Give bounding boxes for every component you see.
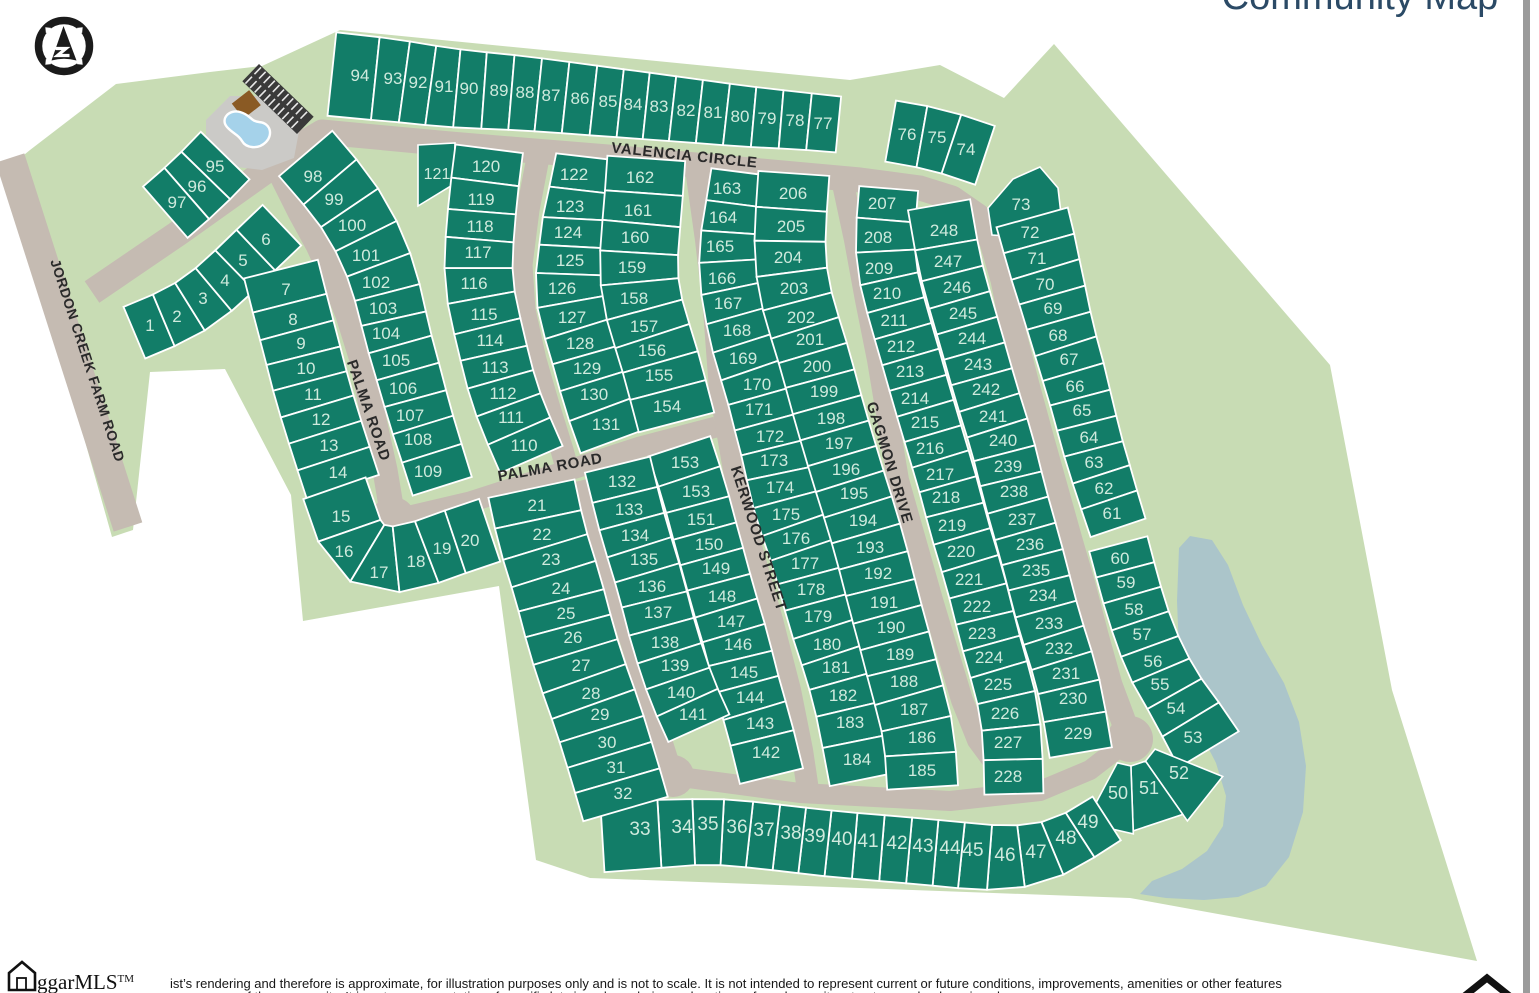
svg-text:145: 145 [730, 663, 758, 682]
svg-text:197: 197 [825, 434, 853, 453]
svg-text:64: 64 [1080, 428, 1099, 447]
svg-text:147: 147 [717, 612, 745, 631]
svg-text:208: 208 [864, 228, 892, 247]
svg-text:43: 43 [912, 836, 933, 857]
svg-text:10: 10 [297, 359, 316, 378]
svg-text:139: 139 [661, 656, 689, 675]
svg-text:133: 133 [615, 500, 643, 519]
svg-text:240: 240 [989, 431, 1017, 450]
svg-text:137: 137 [644, 603, 672, 622]
svg-text:124: 124 [554, 223, 582, 242]
svg-text:222: 222 [963, 597, 991, 616]
svg-text:236: 236 [1016, 535, 1044, 554]
svg-text:49: 49 [1077, 812, 1098, 833]
svg-text:15: 15 [332, 507, 351, 526]
svg-text:143: 143 [746, 714, 774, 733]
svg-text:217: 217 [926, 465, 954, 484]
svg-text:87: 87 [542, 86, 561, 105]
svg-text:205: 205 [777, 217, 805, 236]
svg-text:9: 9 [296, 334, 305, 353]
svg-text:32: 32 [614, 784, 633, 803]
svg-text:111: 111 [498, 408, 524, 427]
svg-text:96: 96 [188, 177, 207, 196]
svg-text:172: 172 [756, 427, 784, 446]
svg-text:177: 177 [791, 554, 819, 573]
svg-text:17: 17 [370, 563, 389, 582]
svg-text:164: 164 [709, 208, 737, 227]
svg-text:153: 153 [682, 482, 710, 501]
svg-text:204: 204 [774, 248, 802, 267]
svg-text:225: 225 [984, 675, 1012, 694]
svg-text:54: 54 [1167, 699, 1186, 718]
svg-text:148: 148 [708, 587, 736, 606]
svg-text:12: 12 [312, 410, 331, 429]
svg-text:59: 59 [1117, 573, 1136, 592]
svg-text:28: 28 [582, 684, 601, 703]
svg-text:107: 107 [396, 406, 424, 425]
svg-text:198: 198 [817, 409, 845, 428]
svg-text:55: 55 [1151, 675, 1170, 694]
svg-text:195: 195 [840, 484, 868, 503]
svg-text:14: 14 [329, 463, 348, 482]
svg-text:68: 68 [1049, 326, 1068, 345]
svg-text:99: 99 [325, 190, 344, 209]
svg-text:110: 110 [510, 436, 537, 455]
svg-text:239: 239 [994, 457, 1022, 476]
svg-text:27: 27 [572, 656, 591, 675]
svg-text:169: 169 [729, 349, 757, 368]
svg-text:138: 138 [651, 633, 679, 652]
svg-text:247: 247 [934, 252, 962, 271]
svg-text:167: 167 [714, 294, 742, 313]
svg-text:25: 25 [557, 604, 576, 623]
svg-text:Community Map: Community Map [1222, 0, 1499, 18]
svg-text:116: 116 [460, 274, 487, 293]
svg-text:156: 156 [638, 341, 666, 360]
svg-text:196: 196 [832, 460, 860, 479]
svg-text:104: 104 [372, 324, 400, 343]
svg-text:21: 21 [528, 496, 547, 515]
svg-text:105: 105 [382, 351, 410, 370]
svg-text:134: 134 [621, 526, 649, 545]
svg-text:7: 7 [281, 280, 290, 299]
svg-text:80: 80 [731, 107, 750, 126]
svg-text:131: 131 [592, 415, 620, 434]
svg-text:128: 128 [566, 334, 594, 353]
svg-text:112: 112 [489, 384, 516, 403]
svg-text:183: 183 [836, 713, 864, 732]
svg-text:248: 248 [930, 221, 958, 240]
svg-text:132: 132 [608, 472, 636, 491]
svg-text:79: 79 [758, 109, 777, 128]
svg-text:126: 126 [548, 279, 576, 298]
svg-text:186: 186 [908, 728, 936, 747]
svg-text:162: 162 [626, 168, 654, 187]
svg-text:36: 36 [726, 817, 747, 838]
svg-text:246: 246 [943, 278, 971, 297]
svg-text:5: 5 [238, 251, 247, 270]
svg-text:125: 125 [556, 251, 584, 270]
svg-text:122: 122 [560, 165, 588, 184]
svg-text:109: 109 [414, 462, 442, 481]
svg-text:89: 89 [490, 81, 509, 100]
svg-text:153: 153 [671, 453, 699, 472]
svg-text:209: 209 [865, 259, 893, 278]
svg-text:84: 84 [624, 95, 643, 114]
svg-text:97: 97 [168, 193, 187, 212]
svg-text:144: 144 [736, 688, 764, 707]
svg-text:207: 207 [868, 194, 896, 213]
svg-text:206: 206 [779, 184, 807, 203]
svg-text:58: 58 [1125, 600, 1144, 619]
svg-text:91: 91 [435, 77, 454, 96]
svg-text:221: 221 [955, 570, 983, 589]
svg-text:67: 67 [1060, 350, 1079, 369]
svg-text:46: 46 [994, 845, 1015, 866]
svg-text:215: 215 [911, 413, 939, 432]
svg-text:159: 159 [618, 258, 646, 277]
svg-text:170: 170 [743, 375, 771, 394]
svg-text:102: 102 [362, 273, 390, 292]
svg-text:184: 184 [843, 750, 871, 769]
svg-text:189: 189 [886, 645, 914, 664]
svg-text:211: 211 [880, 311, 907, 330]
svg-text:121: 121 [424, 166, 451, 183]
svg-text:53: 53 [1184, 728, 1203, 747]
svg-text:69: 69 [1044, 299, 1063, 318]
svg-text:199: 199 [810, 382, 838, 401]
svg-text:65: 65 [1073, 401, 1092, 420]
svg-text:83: 83 [650, 97, 669, 116]
svg-text:34: 34 [671, 817, 693, 838]
svg-text:179: 179 [804, 607, 832, 626]
svg-text:200: 200 [803, 357, 831, 376]
svg-text:219: 219 [938, 516, 966, 535]
svg-text:192: 192 [864, 564, 892, 583]
svg-text:92: 92 [409, 73, 428, 92]
svg-text:77: 77 [814, 114, 833, 133]
svg-text:193: 193 [856, 538, 884, 557]
svg-text:220: 220 [947, 542, 975, 561]
svg-text:72: 72 [1021, 223, 1040, 242]
svg-text:232: 232 [1045, 639, 1073, 658]
svg-text:52: 52 [1169, 763, 1189, 783]
svg-text:123: 123 [556, 197, 584, 216]
svg-text:2: 2 [172, 307, 181, 326]
svg-text:188: 188 [890, 672, 918, 691]
svg-text:82: 82 [677, 101, 696, 120]
svg-text:235: 235 [1022, 561, 1050, 580]
svg-text:135: 135 [630, 550, 658, 569]
svg-text:1: 1 [145, 316, 154, 335]
svg-text:140: 140 [667, 683, 695, 702]
svg-text:29: 29 [591, 705, 610, 724]
svg-text:11: 11 [304, 385, 322, 404]
svg-text:242: 242 [972, 380, 1000, 399]
svg-text:60: 60 [1111, 549, 1130, 568]
svg-text:19: 19 [433, 539, 452, 558]
svg-text:88: 88 [516, 83, 535, 102]
svg-text:157: 157 [630, 317, 658, 336]
svg-text:185: 185 [908, 761, 936, 780]
svg-text:155: 155 [645, 366, 673, 385]
svg-text:165: 165 [706, 237, 734, 256]
svg-text:190: 190 [877, 618, 905, 637]
svg-text:74: 74 [957, 140, 976, 159]
svg-text:73: 73 [1012, 195, 1031, 214]
svg-text:174: 174 [766, 478, 794, 497]
svg-text:218: 218 [932, 488, 960, 507]
svg-text:244: 244 [958, 329, 986, 348]
svg-text:117: 117 [464, 243, 491, 262]
svg-text:210: 210 [873, 284, 901, 303]
svg-text:76: 76 [898, 125, 917, 144]
svg-text:120: 120 [472, 157, 500, 176]
svg-text:113: 113 [481, 358, 508, 377]
svg-text:38: 38 [780, 823, 801, 844]
svg-text:160: 160 [621, 228, 649, 247]
svg-text:213: 213 [896, 362, 924, 381]
svg-text:194: 194 [849, 511, 877, 530]
svg-text:227: 227 [994, 733, 1022, 752]
svg-text:166: 166 [708, 269, 736, 288]
svg-text:115: 115 [470, 305, 497, 324]
svg-text:154: 154 [653, 397, 681, 416]
svg-text:173: 173 [760, 451, 788, 470]
svg-text:40: 40 [831, 829, 852, 850]
svg-text:191: 191 [870, 593, 898, 612]
svg-text:24: 24 [552, 579, 571, 598]
svg-text:50: 50 [1108, 783, 1128, 803]
svg-text:16: 16 [335, 542, 354, 561]
svg-text:212: 212 [887, 337, 915, 356]
svg-text:30: 30 [598, 733, 617, 752]
svg-text:158: 158 [620, 289, 648, 308]
svg-text:245: 245 [949, 304, 977, 323]
svg-text:216: 216 [916, 439, 944, 458]
svg-text:187: 187 [900, 700, 928, 719]
svg-text:149: 149 [702, 559, 730, 578]
svg-text:41: 41 [857, 831, 878, 852]
svg-text:23: 23 [542, 550, 561, 569]
svg-text:85: 85 [599, 92, 618, 111]
svg-text:71: 71 [1028, 249, 1047, 268]
svg-text:6: 6 [261, 230, 270, 249]
svg-text:51: 51 [1139, 778, 1159, 798]
svg-text:95: 95 [206, 157, 225, 176]
svg-text:78: 78 [786, 111, 805, 130]
svg-text:56: 56 [1144, 652, 1163, 671]
svg-text:237: 237 [1008, 510, 1036, 529]
svg-text:45: 45 [962, 840, 983, 861]
svg-text:203: 203 [780, 279, 808, 298]
svg-text:94: 94 [351, 66, 370, 85]
svg-text:233: 233 [1035, 614, 1063, 633]
svg-text:35: 35 [697, 814, 718, 835]
svg-text:31: 31 [607, 758, 626, 777]
svg-text:4: 4 [220, 271, 229, 290]
svg-text:119: 119 [467, 190, 494, 209]
svg-text:150: 150 [695, 535, 723, 554]
svg-text:of the community. It is not a: of the community. It is not a representa… [240, 989, 1028, 993]
svg-text:146: 146 [724, 635, 752, 654]
svg-text:224: 224 [975, 648, 1003, 667]
svg-text:22: 22 [533, 525, 552, 544]
svg-text:66: 66 [1066, 377, 1085, 396]
svg-text:171: 171 [745, 400, 773, 419]
svg-text:44: 44 [939, 838, 961, 859]
svg-text:136: 136 [638, 577, 666, 596]
svg-text:228: 228 [994, 767, 1022, 786]
svg-text:230: 230 [1059, 689, 1087, 708]
svg-text:86: 86 [571, 89, 590, 108]
svg-text:127: 127 [558, 308, 586, 327]
svg-text:175: 175 [772, 505, 800, 524]
svg-text:202: 202 [787, 308, 815, 327]
svg-text:70: 70 [1036, 275, 1055, 294]
svg-text:18: 18 [407, 552, 426, 571]
svg-text:229: 229 [1064, 724, 1092, 743]
svg-text:47: 47 [1025, 842, 1046, 863]
svg-text:8: 8 [288, 310, 297, 329]
svg-text:176: 176 [782, 529, 810, 548]
svg-text:81: 81 [704, 103, 723, 122]
svg-text:108: 108 [404, 430, 432, 449]
svg-text:231: 231 [1052, 664, 1080, 683]
svg-text:37: 37 [753, 820, 774, 841]
svg-text:182: 182 [829, 686, 857, 705]
svg-text:33: 33 [629, 819, 650, 840]
svg-text:39: 39 [804, 826, 825, 847]
svg-text:75: 75 [928, 128, 947, 147]
svg-text:130: 130 [580, 385, 608, 404]
svg-text:106: 106 [389, 379, 417, 398]
svg-text:168: 168 [723, 321, 751, 340]
svg-text:178: 178 [797, 580, 825, 599]
svg-text:118: 118 [466, 217, 493, 236]
svg-text:42: 42 [886, 833, 907, 854]
svg-text:61: 61 [1103, 504, 1122, 523]
svg-text:20: 20 [461, 531, 480, 550]
svg-text:201: 201 [796, 330, 824, 349]
svg-text:226: 226 [991, 704, 1019, 723]
svg-text:238: 238 [1000, 482, 1028, 501]
svg-text:100: 100 [338, 216, 366, 235]
svg-text:161: 161 [624, 201, 652, 220]
svg-text:26: 26 [564, 628, 583, 647]
svg-text:114: 114 [476, 331, 503, 350]
svg-text:48: 48 [1055, 828, 1076, 849]
svg-text:163: 163 [713, 179, 741, 198]
svg-text:101: 101 [352, 246, 380, 265]
svg-text:141: 141 [679, 705, 707, 724]
svg-text:90: 90 [460, 79, 479, 98]
svg-text:13: 13 [320, 436, 339, 455]
svg-text:234: 234 [1029, 586, 1057, 605]
svg-text:223: 223 [968, 624, 996, 643]
svg-text:243: 243 [964, 355, 992, 374]
svg-text:241: 241 [979, 407, 1007, 426]
svg-text:57: 57 [1133, 625, 1152, 644]
svg-text:98: 98 [304, 167, 323, 186]
svg-text:180: 180 [813, 635, 841, 654]
svg-text:103: 103 [369, 299, 397, 318]
svg-text:142: 142 [752, 743, 780, 762]
svg-text:3: 3 [198, 289, 207, 308]
svg-text:129: 129 [573, 359, 601, 378]
svg-text:214: 214 [901, 389, 929, 408]
svg-text:62: 62 [1095, 479, 1114, 498]
svg-text:63: 63 [1085, 453, 1104, 472]
svg-text:151: 151 [687, 510, 715, 529]
svg-text:181: 181 [822, 658, 850, 677]
svg-text:93: 93 [384, 69, 403, 88]
